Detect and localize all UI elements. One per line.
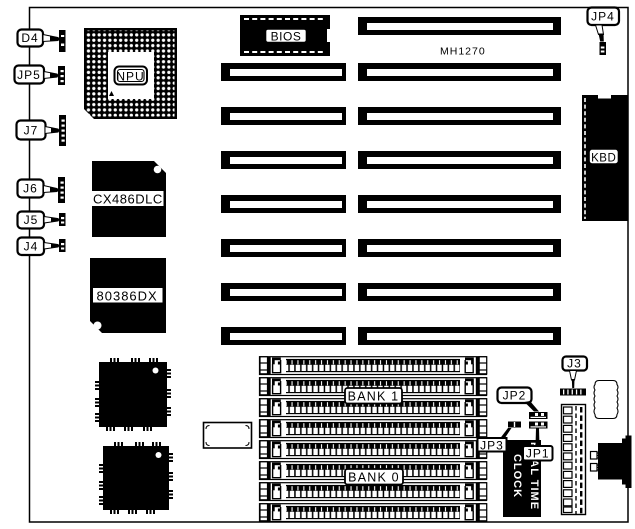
svg-text:CLOCK: CLOCK [511,454,523,498]
svg-text:KBD: KBD [591,153,616,165]
svg-text:J3: J3 [567,357,582,371]
svg-text:BANK 0: BANK 0 [348,471,400,485]
svg-text:BANK 1: BANK 1 [348,390,400,404]
svg-text:CX486DLC: CX486DLC [93,192,163,207]
svg-text:BIOS: BIOS [271,30,302,44]
svg-text:D4: D4 [21,31,38,45]
svg-text:NPU: NPU [116,70,144,84]
svg-text:JP4: JP4 [591,10,615,24]
svg-text:MH1270: MH1270 [440,46,486,58]
svg-text:JP5: JP5 [17,68,41,82]
svg-text:J6: J6 [23,182,38,196]
svg-text:JP2: JP2 [503,389,527,403]
svg-text:JP1: JP1 [526,447,550,461]
svg-text:J4: J4 [24,240,39,254]
svg-text:J7: J7 [24,124,39,138]
svg-text:J5: J5 [24,213,39,227]
svg-text:80386DX: 80386DX [97,289,158,304]
svg-text:JP3: JP3 [480,439,504,453]
